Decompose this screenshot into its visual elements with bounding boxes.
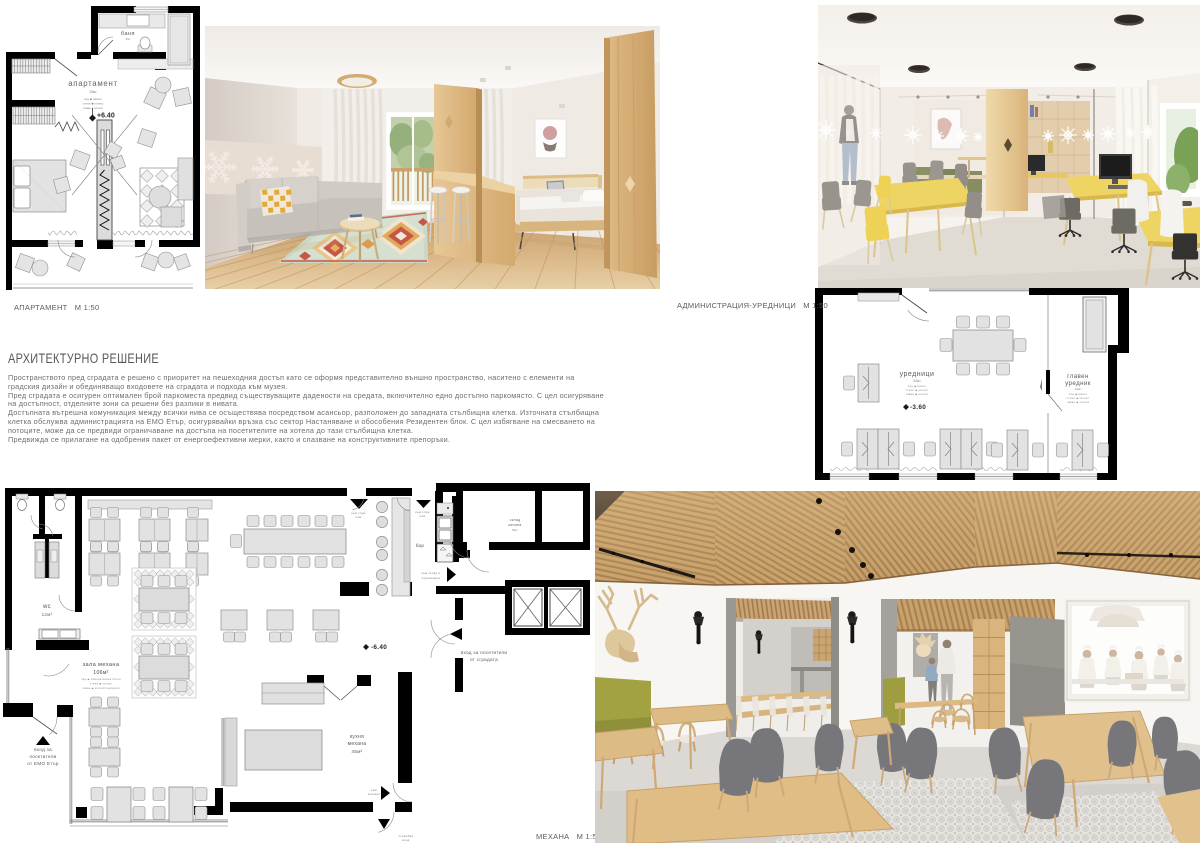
svg-text:таван + котекс: таван + котекс — [83, 106, 104, 110]
svg-text:-6.40: -6.40 — [371, 644, 387, 651]
svg-text:45м²: 45м² — [352, 749, 363, 754]
svg-text:склад: склад — [510, 518, 521, 522]
svg-text:подземници: подземници — [422, 576, 441, 580]
svg-text:вход за: вход за — [34, 747, 52, 752]
svg-text:към склад и: към склад и — [422, 571, 441, 575]
svg-text:под ◆ саморазливен бетон: под ◆ саморазливен бетон — [81, 677, 121, 681]
svg-text:вход за посетители: вход за посетители — [461, 650, 508, 655]
svg-text:бар: бар — [416, 543, 425, 548]
svg-text:посетители: посетители — [29, 754, 56, 759]
svg-text:кинозал: кинозал — [368, 792, 380, 796]
svg-text:106м²: 106м² — [93, 670, 108, 676]
svg-text:кухня: кухня — [350, 734, 364, 740]
svg-text:зала механа: зала механа — [83, 662, 120, 668]
svg-text:механа: механа — [348, 741, 367, 747]
svg-text:стени ◆ котекс: стени ◆ котекс — [90, 683, 112, 686]
svg-text:+6.40: +6.40 — [97, 113, 115, 120]
svg-text:таван ◆ котекс: таван ◆ котекс — [1067, 401, 1090, 404]
svg-text:под ◆ мокет: под ◆ мокет — [908, 385, 927, 388]
svg-text:от ЕМО Етър: от ЕМО Етър — [27, 761, 59, 766]
svg-text:таван ◆ котекс: таван ◆ котекс — [906, 393, 929, 396]
svg-text:апартамент: апартамент — [68, 79, 117, 88]
svg-text:под ◆ паркет: под ◆ паркет — [84, 97, 103, 101]
svg-text:вход: вход — [402, 838, 409, 842]
svg-text:пом.: пом. — [420, 514, 427, 518]
svg-text:механа: механа — [508, 523, 521, 527]
svg-text:таван ◆ котекс/ламперия: таван ◆ котекс/ламперия — [82, 686, 120, 690]
svg-text:9м²: 9м² — [512, 528, 518, 532]
svg-text:стени ◆ котекс: стени ◆ котекс — [1067, 397, 1090, 400]
svg-text:wc: wc — [42, 604, 51, 610]
svg-text:под ◆ мокет: под ◆ мокет — [1069, 393, 1088, 396]
svg-text:уредници: уредници — [900, 371, 935, 378]
svg-text:14м²: 14м² — [1074, 387, 1082, 391]
svg-text:пом.: пом. — [356, 515, 363, 519]
svg-text:32м²: 32м² — [913, 379, 921, 383]
svg-text:стени ◆ котекс: стени ◆ котекс — [906, 389, 929, 392]
svg-text:-3.60: -3.60 — [910, 404, 926, 411]
svg-text:главен: главен — [1067, 373, 1089, 380]
svg-text:стени ◆ котекс: стени ◆ котекс — [83, 102, 104, 106]
svg-text:от сградата: от сградата — [470, 657, 498, 662]
svg-text:12м²: 12м² — [42, 612, 53, 617]
svg-text:6м²: 6м² — [126, 37, 130, 41]
svg-text:32м²: 32м² — [90, 90, 97, 94]
svg-text:уредник: уредник — [1065, 380, 1091, 387]
